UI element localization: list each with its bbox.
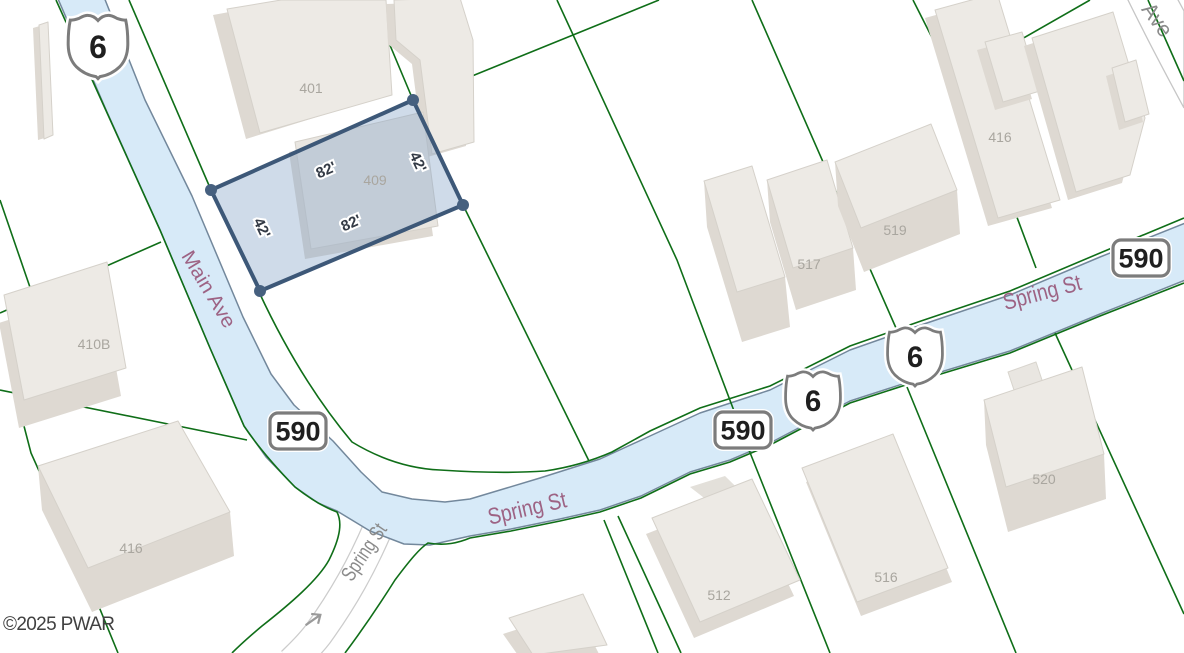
svg-text:401: 401 — [299, 80, 323, 96]
svg-text:416: 416 — [988, 129, 1012, 145]
svg-text:6: 6 — [907, 341, 923, 374]
svg-text:©2025 PWAR: ©2025 PWAR — [3, 614, 115, 635]
svg-text:6: 6 — [89, 29, 107, 65]
svg-text:6: 6 — [805, 385, 821, 418]
svg-text:519: 519 — [883, 222, 907, 238]
svg-text:590: 590 — [720, 416, 765, 446]
svg-text:590: 590 — [1118, 244, 1163, 274]
svg-text:410B: 410B — [78, 336, 111, 352]
svg-text:416: 416 — [119, 540, 143, 556]
svg-text:520: 520 — [1032, 471, 1056, 487]
svg-text:517: 517 — [797, 256, 821, 272]
svg-text:409: 409 — [363, 172, 387, 188]
svg-text:590: 590 — [275, 417, 320, 447]
svg-text:512: 512 — [707, 587, 731, 603]
svg-text:516: 516 — [874, 569, 898, 585]
